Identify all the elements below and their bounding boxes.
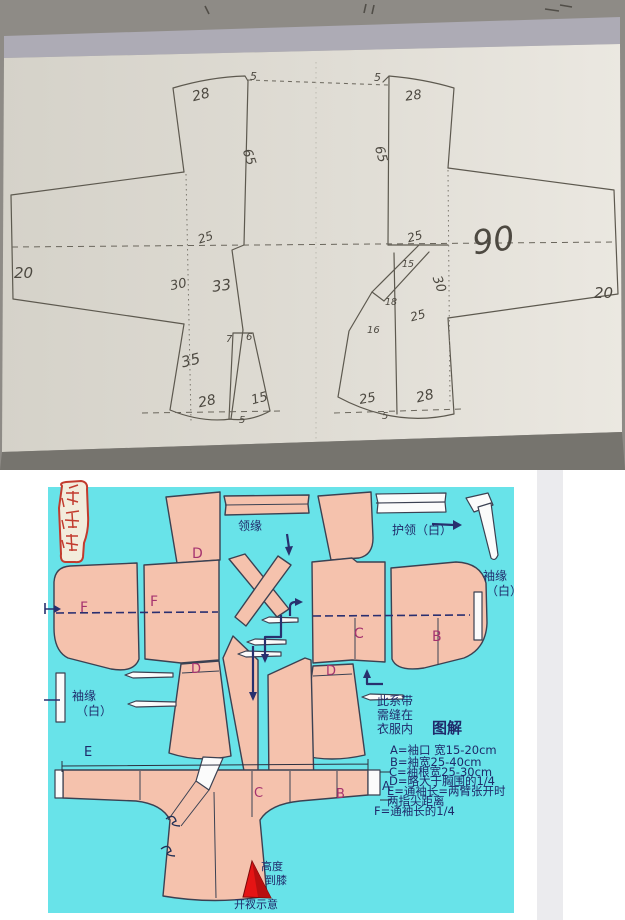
- meas-lb-tick: 5: [250, 70, 257, 83]
- tie-strip-5: [238, 651, 281, 657]
- screenshot-root: 20 28 5 65 25 30 33 7 6 35 28 15 5 5 28 …: [0, 0, 625, 920]
- meas-rb-15: 15: [402, 259, 414, 270]
- sleeve-trim-left-strip: [56, 673, 65, 722]
- sleeve-trim-right-label-1: 袖缘: [483, 568, 507, 583]
- sleeve-trim-left-label-2: （白）: [76, 703, 112, 718]
- label-B-lower: B: [336, 787, 345, 802]
- legend-title: 图解: [432, 719, 462, 737]
- tie-note-line3: 衣服内: [377, 721, 413, 736]
- pattern-paper: [2, 44, 622, 452]
- garment-cuff-right: [368, 770, 380, 795]
- tie-note-line2: 需缝在: [377, 707, 413, 722]
- label-A-cuff: A: [382, 779, 391, 793]
- meas-rb-top: 28: [404, 88, 422, 105]
- slit-height-line1: 高度: [261, 859, 283, 873]
- piece-right-body-C: [312, 558, 385, 663]
- garment-cuff-left: [55, 770, 63, 798]
- slit-caption: 开衩示意: [234, 897, 278, 911]
- meas-lb-hem5: 5: [239, 415, 245, 426]
- label-C-body: C: [354, 626, 364, 642]
- label-D-left: D: [191, 662, 201, 677]
- tie-note-line1: 此系带: [377, 694, 413, 708]
- label-D-right: D: [326, 664, 336, 679]
- meas-lb-6: 6: [246, 332, 252, 343]
- label-E-dim: E: [84, 745, 92, 760]
- label-F-body: F: [150, 594, 158, 610]
- collar-trim-label: 领缘: [238, 519, 262, 533]
- red-seal: [59, 481, 88, 562]
- meas-rb-hem5: 5: [382, 411, 388, 422]
- meas-lb-33: 33: [211, 275, 232, 295]
- piece-left-sleeve-F: [54, 563, 139, 670]
- meas-rb-hem25: 25: [358, 390, 377, 408]
- label-C-lower: C: [254, 786, 263, 801]
- tie-strip-4: [247, 639, 286, 645]
- label-B-sleeve: B: [432, 629, 442, 645]
- label-D-top: D: [192, 546, 203, 562]
- tie-strip-1: [125, 672, 173, 678]
- collar-guard-label: 护领（白）: [392, 522, 452, 537]
- slit-height-line2: 到膝: [265, 874, 287, 887]
- page-side-strip: [537, 470, 563, 920]
- hand-drawn-pattern-photo: 20 28 5 65 25 30 33 7 6 35 28 15 5 5 28 …: [0, 0, 625, 470]
- meas-left-sleeve: 20: [14, 264, 33, 282]
- label-F-sleeve: F: [80, 600, 88, 616]
- meas-rb-16: 16: [367, 325, 380, 336]
- meas-rb-18: 18: [385, 297, 397, 308]
- meas-size-90: 90: [470, 218, 517, 262]
- hanfu-pattern-diagram: 领缘 护领（白） 袖缘 （白） 袖缘 （白） 此系带 需缝在 衣服内 图解 A=…: [0, 470, 625, 920]
- tie-strip-2: [128, 701, 176, 707]
- sleeve-trim-right-strip: [474, 592, 482, 640]
- legend-line-f: F=通袖长的1/4: [374, 804, 455, 818]
- sleeve-trim-right-label-2: （白）: [486, 583, 522, 598]
- meas-lb-7: 7: [226, 334, 233, 345]
- meas-right-sleeve: 20: [594, 284, 613, 302]
- sleeve-trim-left-label-1: 袖缘: [72, 688, 96, 703]
- meas-rb-tick: 5: [374, 71, 381, 84]
